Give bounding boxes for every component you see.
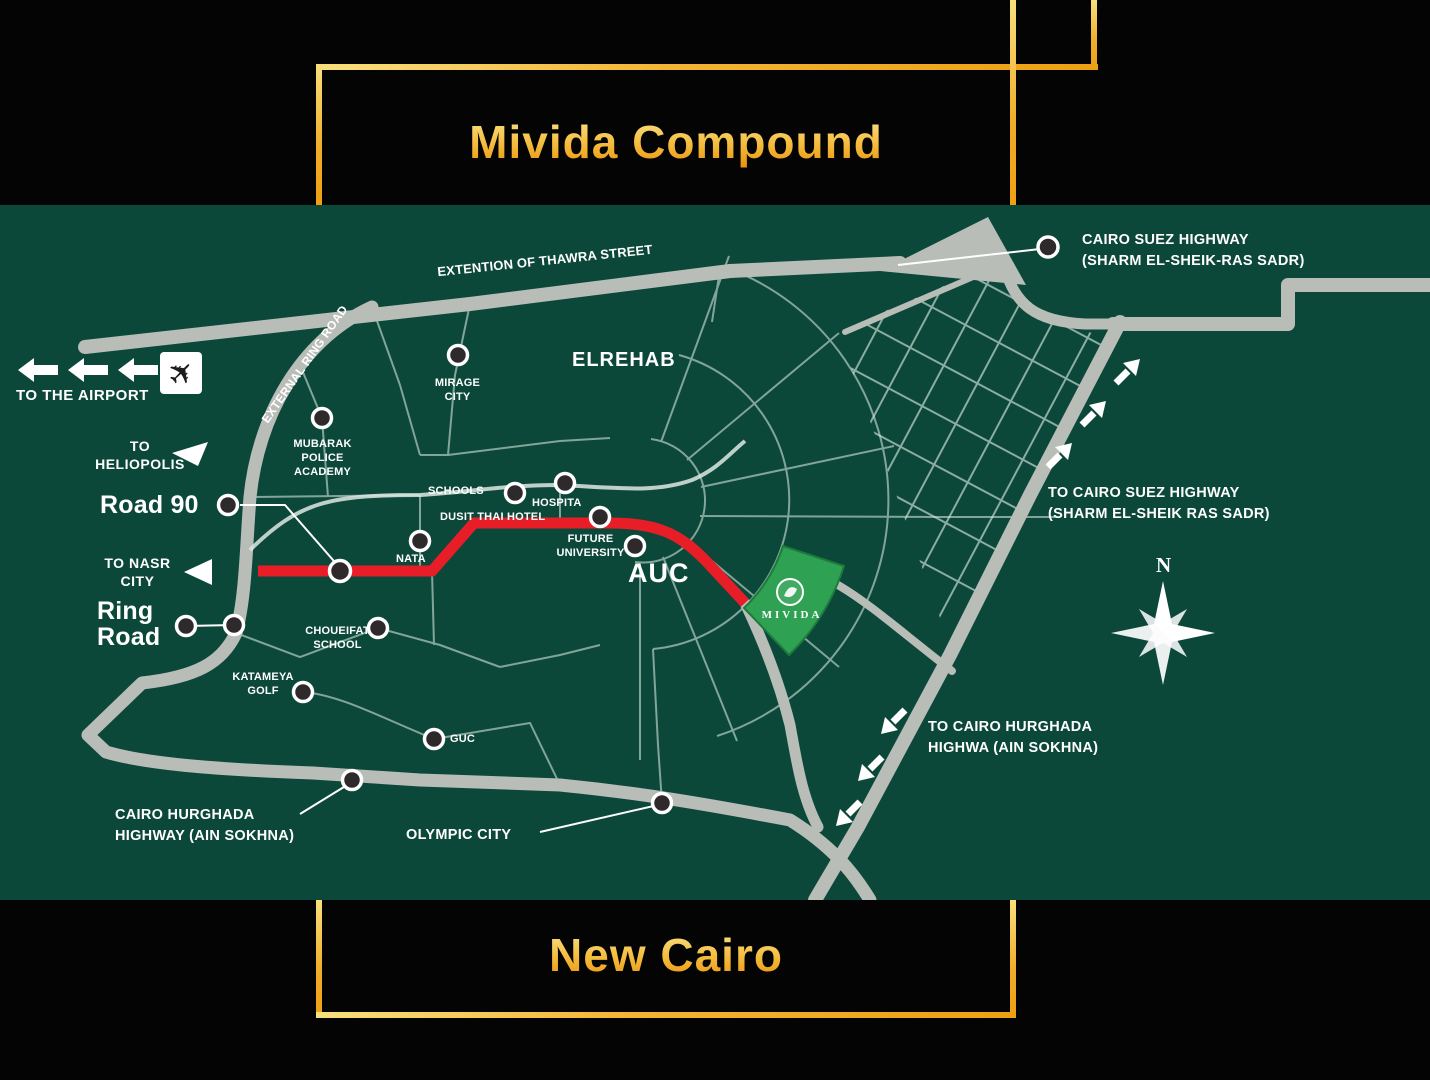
map-area: EXTENTION OF THAWRA STREET CAIRO SUEZ HI… — [0, 205, 1430, 900]
frame-top-right-tick — [1091, 0, 1097, 70]
marker-ring-road-b — [225, 616, 244, 635]
label-road-90: Road 90 — [100, 492, 230, 518]
label-hospital: HOSPITA — [532, 497, 612, 511]
label-to-cairo-hurghada-highway: TO CAIRO HURGHADA HIGHWA (AIN SOKHNA) — [928, 717, 1148, 759]
label-elrehab: ELREHAB — [572, 348, 702, 373]
map-graphics — [0, 205, 1430, 900]
page-title: Mivida Compound — [316, 115, 1036, 169]
frame-top-right-line — [1010, 0, 1016, 205]
label-katameya-golf: KATAMEYA GOLF — [218, 671, 308, 699]
marker-road90-junction — [330, 561, 351, 582]
suez-diagonal-highway — [815, 322, 1120, 900]
compass-rose-icon — [1111, 581, 1215, 685]
marker-olympic-city — [653, 794, 672, 813]
label-auc: AUC — [628, 557, 718, 591]
label-guc: GUC — [450, 733, 500, 747]
label-to-heliopolis: TO HELIOPOLIS — [85, 438, 195, 473]
thawra-street-road — [85, 263, 900, 347]
label-choueifat-school: CHOUEIFAT SCHOOL — [290, 625, 385, 653]
label-cairo-hurghada-highway: CAIRO HURGHADA HIGHWAY (AIN SOKHNA) — [115, 805, 325, 847]
page-subtitle: New Cairo — [316, 928, 1016, 982]
marker-hurghada-highway — [343, 771, 362, 790]
frame-top-line — [316, 64, 1098, 70]
airport-icon: ✈ — [160, 352, 202, 394]
mivida-location-map: Mivida Compound New Cairo — [0, 0, 1430, 1080]
marker-mubarak-academy — [313, 409, 332, 428]
marker-nata — [411, 532, 430, 551]
label-cairo-suez-highway: CAIRO SUEZ HIGHWAY (SHARM EL-SHEIK-RAS S… — [1082, 230, 1352, 272]
label-olympic-city: OLYMPIC CITY — [406, 825, 546, 846]
stepped-road — [1113, 285, 1430, 324]
label-nata: NATA — [396, 553, 446, 567]
marker-hospital — [556, 474, 575, 493]
marker-mirage-city — [449, 346, 468, 365]
marker-schools — [506, 484, 525, 503]
label-ring-road: Ring Road — [97, 598, 187, 651]
label-to-cairo-suez-highway: TO CAIRO SUEZ HIGHWAY (SHARM EL-SHEIK RA… — [1048, 483, 1288, 525]
label-schools: SCHOOLS — [428, 485, 508, 499]
label-compass-north: N — [1156, 553, 1171, 578]
marker-cairo-suez-highway — [1038, 237, 1058, 257]
label-mivida: MIVIDA — [752, 609, 832, 621]
label-mubarak-academy: MUBARAK POLICE ACADEMY — [270, 438, 375, 479]
major-roads — [85, 217, 1430, 900]
airport-arrows-icon — [18, 358, 158, 382]
label-dusit-thai-hotel: DUSIT THAI HOTEL — [440, 511, 570, 525]
label-to-nasr-city: TO NASR CITY — [80, 555, 195, 590]
marker-guc — [425, 730, 444, 749]
label-mirage-city: MIRAGE CITY — [410, 377, 505, 405]
frame-bottom-line — [316, 1012, 1016, 1018]
